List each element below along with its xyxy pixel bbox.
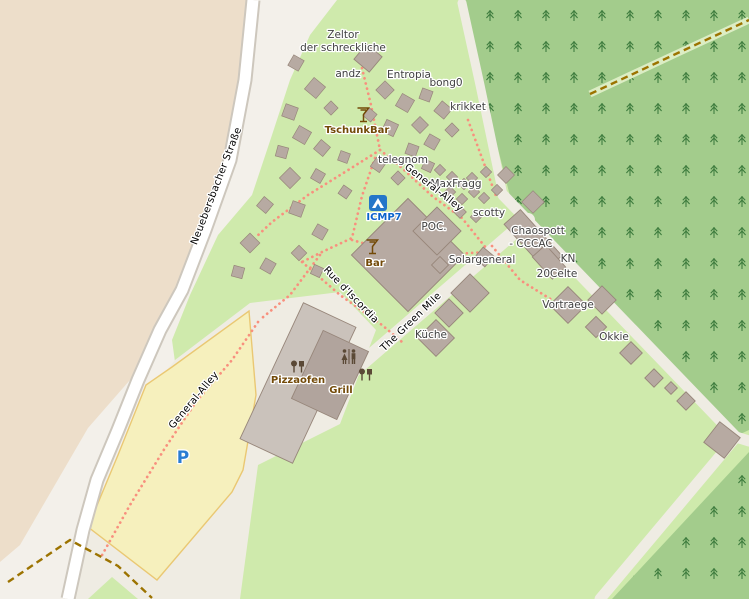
- map-canvas[interactable]: Zeltorder schrecklicheandzEntropiabong0k…: [0, 0, 749, 599]
- map-label-bar: Bar: [365, 258, 384, 269]
- map-label-solargeneral: Solargeneral: [449, 254, 515, 266]
- map-label-20celte: 20Celte: [537, 268, 578, 280]
- map-label-andz: andz: [335, 68, 361, 80]
- campsite-icon: [369, 195, 387, 211]
- map-label-okkie: Okkie: [599, 331, 629, 343]
- map-label-icmp7: ICMP7: [366, 212, 401, 223]
- openstreetmap-view[interactable]: Zeltorder schrecklicheandzEntropiabong0k…: [0, 0, 749, 599]
- map-label-vortraege: Vortraege: [542, 299, 594, 311]
- map-label-der-schreckliche: der schreckliche: [300, 42, 386, 54]
- map-label-grill: Grill: [329, 385, 352, 396]
- tent: [275, 145, 288, 158]
- map-label-cccac: - CCCAC: [509, 238, 552, 250]
- map-label-chaospott: Chaospott: [511, 225, 565, 237]
- map-label-krikket: krikket: [450, 101, 486, 113]
- map-label-poc: POC.: [421, 221, 446, 233]
- map-label-pizzaofen: Pizzaofen: [271, 375, 325, 386]
- map-label-k-che: Küche: [415, 329, 447, 341]
- map-label-bong0: bong0: [429, 77, 462, 89]
- map-label-entropia: Entropia: [387, 69, 431, 81]
- map-label-p: P: [177, 448, 189, 468]
- map-label-telegnom: telegnom: [378, 154, 428, 166]
- map-label-kn: KN: [561, 253, 576, 265]
- map-label-tschunkbar: TschunkBar: [325, 125, 390, 136]
- map-label-zeltor: Zeltor: [327, 29, 359, 41]
- map-label-scotty: scotty: [473, 207, 505, 219]
- tent: [231, 265, 244, 278]
